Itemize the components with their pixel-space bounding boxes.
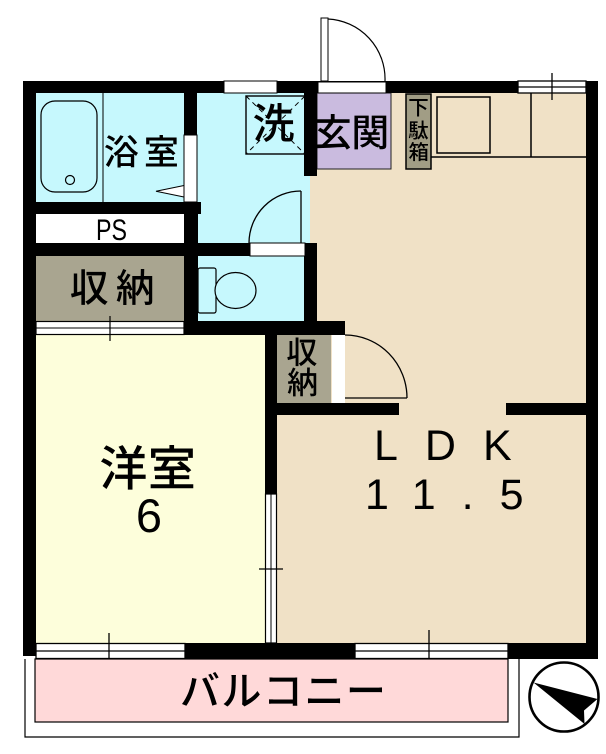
svg-text:11.5: 11.5 bbox=[365, 471, 550, 519]
svg-text:6: 6 bbox=[136, 489, 162, 542]
svg-text:PS: PS bbox=[96, 214, 127, 247]
svg-text:LDK: LDK bbox=[374, 422, 539, 470]
